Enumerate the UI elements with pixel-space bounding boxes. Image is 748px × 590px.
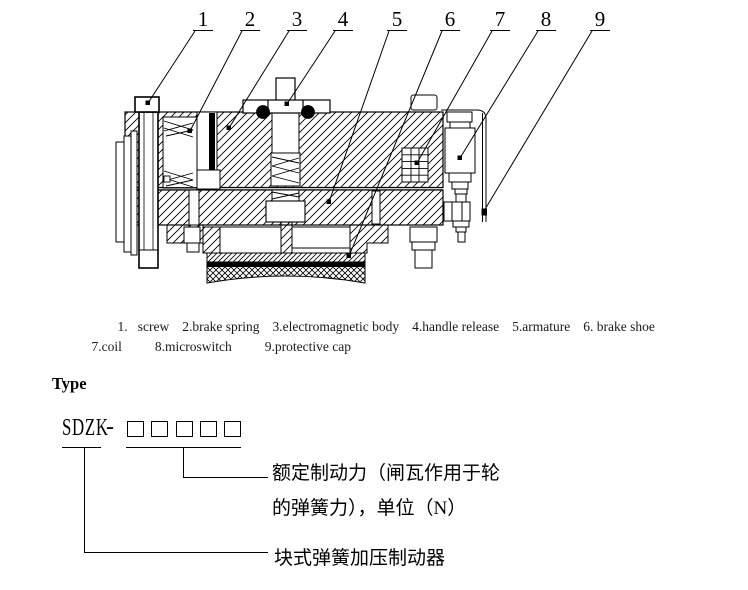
legend-item: 6. brake shoe	[583, 319, 655, 334]
handle-knob-right	[302, 106, 315, 119]
legend-item: 9.protective cap	[265, 339, 351, 354]
connector-vertical-boxes	[183, 447, 184, 478]
connector-vertical-prefix	[84, 447, 85, 553]
legend-item: 7.coil	[92, 339, 122, 354]
callout-2: 2	[245, 7, 256, 31]
brake-type-annotation: 块式弹簧加压制动器	[274, 541, 445, 576]
rated-force-line-1: 额定制动力（闸瓦作用于轮	[272, 456, 500, 491]
model-separator: -	[106, 414, 114, 441]
callout-9: 9	[595, 7, 606, 31]
brake-shoe-assembly	[167, 222, 437, 283]
model-digit-box	[200, 421, 217, 437]
legend-item: 4.handle release	[412, 319, 499, 334]
callout-numbers: 1 2 3 4 5 6 7 8 9	[193, 7, 610, 31]
rated-force-line-2: 的弹簧力），单位（N）	[272, 491, 500, 526]
type-heading: Type	[52, 374, 87, 394]
legend-line-2: 7.coil8.microswitch9.protective cap	[78, 323, 384, 371]
callout-4: 4	[338, 7, 349, 31]
prefix-underline	[62, 447, 101, 448]
microswitch-body	[445, 128, 475, 173]
callout-7: 7	[495, 7, 506, 31]
model-digit-box	[176, 421, 193, 437]
model-digit-boxes	[127, 421, 248, 437]
legend-item: 8.microswitch	[155, 339, 232, 354]
connector-horizontal-brake	[84, 552, 268, 553]
rated-force-annotation: 额定制动力（闸瓦作用于轮 的弹簧力），单位（N）	[272, 456, 500, 526]
callout-5: 5	[392, 7, 403, 31]
callout-6: 6	[445, 7, 456, 31]
model-digit-box	[224, 421, 241, 437]
legend-item: 5.armature	[512, 319, 570, 334]
connector-horizontal-force	[183, 477, 268, 478]
callout-3: 3	[292, 7, 303, 31]
handle-knob-left	[257, 106, 270, 119]
catalog-page: 1 2 3 4 5 6 7 8 9 1. screw2.brake spring…	[0, 0, 748, 590]
brake-lining	[207, 267, 365, 284]
callout-8: 8	[541, 7, 552, 31]
shoe-back-plate	[207, 253, 365, 262]
callout-1: 1	[198, 7, 209, 31]
brake-cross-section-drawing: 1 2 3 4 5 6 7 8 9	[0, 0, 748, 298]
armature-gap-lines	[125, 188, 443, 190]
model-digit-box	[127, 421, 144, 437]
model-prefix: SDZK	[62, 415, 109, 442]
model-digit-box	[151, 421, 168, 437]
